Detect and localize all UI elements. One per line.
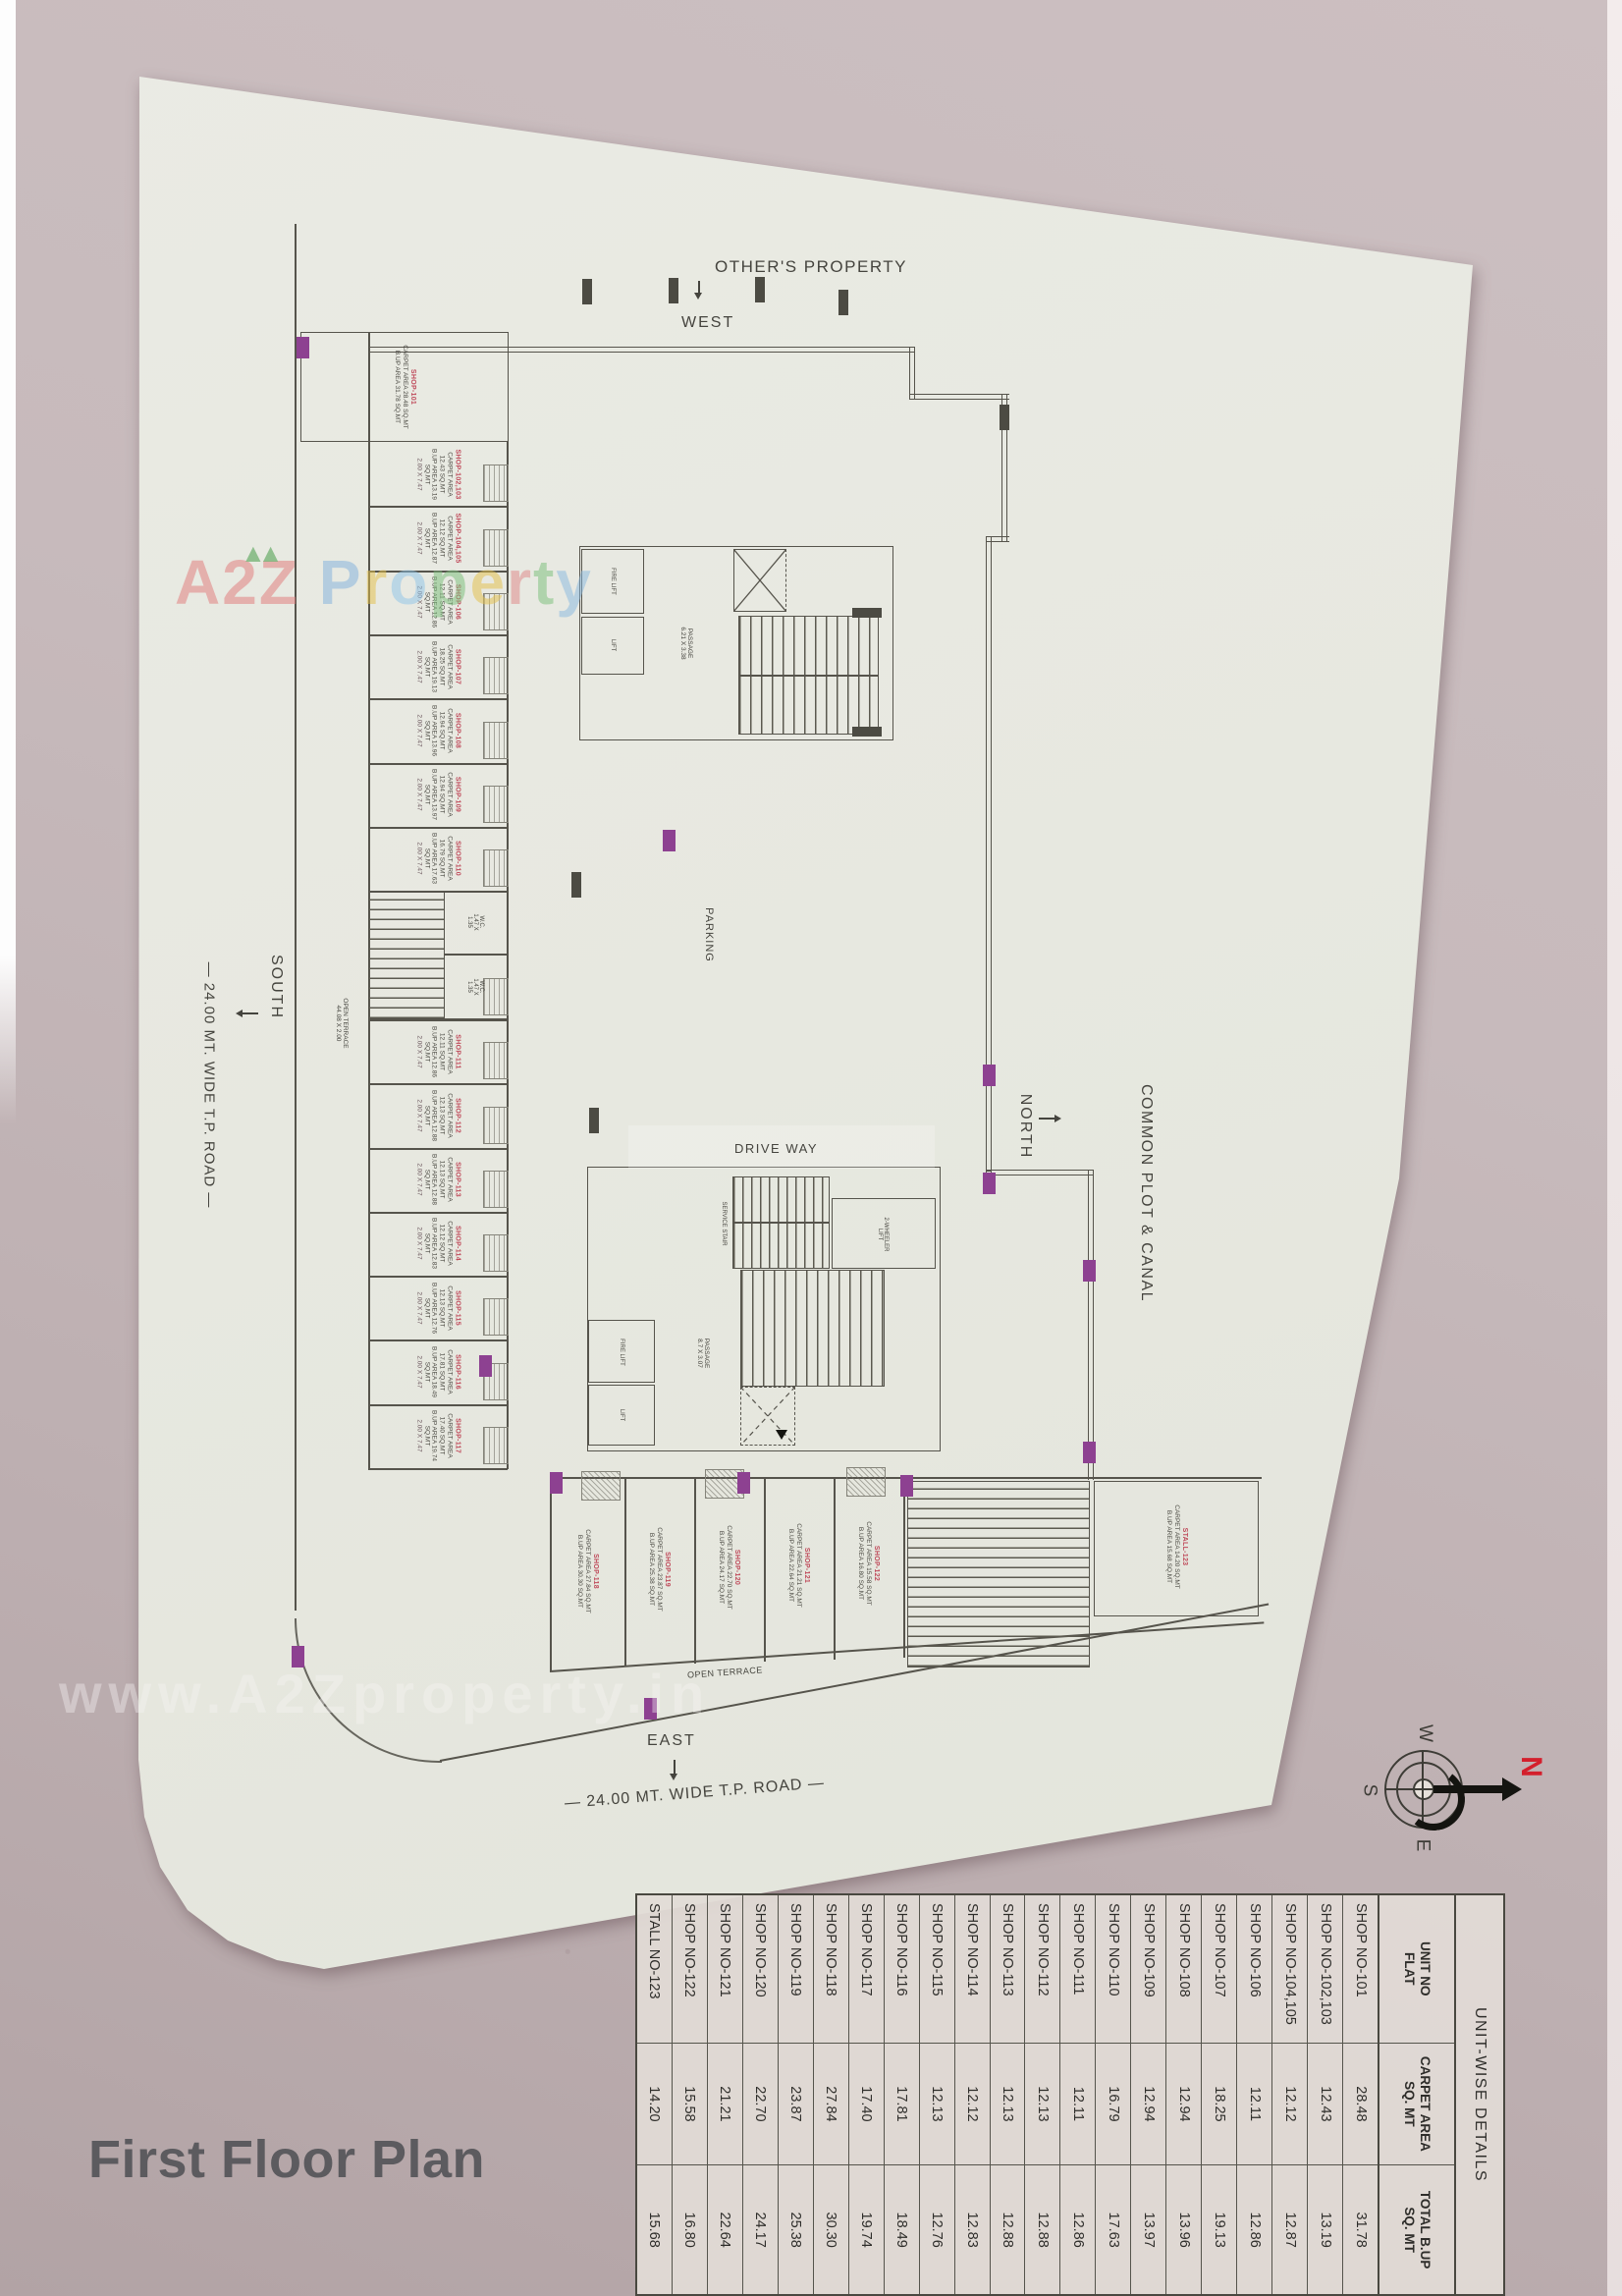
passage-lower-label: PASSAGE 8.7 X 3.07 (696, 1339, 710, 1369)
shop-unit: SHOP-117CARPET AREA 17.40 SQ.MTB.UP AREA… (415, 1407, 461, 1464)
compass-n: N (1514, 1756, 1547, 1777)
open-terrace-left-label: OPEN TERRACE 44.08 X 2.00 (335, 998, 349, 1048)
passage-upper-label: PASSAGE 6.21 X 3.38 (679, 627, 693, 659)
table-cell: SHOP NO-108 (1166, 1895, 1201, 2044)
shop-divider (368, 1212, 508, 1214)
table-cell: SHOP NO-113 (991, 1895, 1025, 2044)
a2z-watermark-brand: A2Z (175, 547, 299, 618)
boundary-wall (986, 1170, 1094, 1175)
shop-door (483, 1298, 509, 1336)
shop-unit: SHOP-110CARPET AREA 16.79 SQ.MTB.UP AREA… (415, 830, 461, 887)
a2z-watermark-letter: o (389, 547, 429, 618)
table-cell: 12.13 (991, 2044, 1025, 2166)
table-cell: 17.40 (849, 2044, 884, 2166)
a2z-watermark-letter: e (469, 547, 507, 618)
upper-stair-rail (738, 675, 879, 677)
service-stair-rail (732, 1222, 830, 1224)
north-label: NORTH (1016, 1094, 1034, 1160)
mountain-icon: ▲▲ (241, 538, 275, 569)
table-cell: STALL NO-123 (637, 1895, 672, 2044)
column (669, 278, 678, 303)
table-cell: 14.20 (637, 2044, 672, 2166)
boundary-wall (909, 394, 1009, 400)
table-header-cell: UNIT NO FLAT (1379, 1895, 1454, 2044)
table-cell: 31.78 (1343, 2165, 1378, 2294)
a2z-watermark-letter: r (507, 547, 533, 618)
table-header-cell: TOTAL B.UP SQ. MT (1379, 2165, 1454, 2294)
shop-unit: SHOP-115CARPET AREA 12.13 SQ.MTB.UP AREA… (415, 1280, 461, 1337)
table-cell: 19.74 (849, 2165, 884, 2294)
wc-1-label: W.C. 1.47 X 1.35 (466, 913, 484, 930)
table-cell: 16.79 (1096, 2044, 1130, 2166)
table-cell: SHOP NO-107 (1202, 1895, 1236, 2044)
table-row: SHOP NO-11827.8430.30 (813, 1895, 848, 2294)
table-row: SHOP NO-12121.2122.64 (707, 1895, 742, 2294)
unit-wise-details-table: UNIT-WISE DETAILS UNIT NO FLATCARPET ARE… (635, 1893, 1505, 2296)
shop-divider (368, 1404, 508, 1406)
table-header-row: UNIT NO FLATCARPET AREA SQ. MTTOTAL B.UP… (1378, 1895, 1454, 2294)
table-cell: 23.87 (779, 2044, 813, 2166)
drive-way-label: DRIVE WAY (734, 1141, 818, 1156)
table-row: SHOP NO-10128.4831.78 (1342, 1895, 1378, 2294)
column-marker (1083, 1442, 1096, 1463)
shop-divider (368, 763, 508, 765)
table-cell: 12.94 (1166, 2044, 1201, 2166)
shop-unit: SHOP-102,103CARPET AREA 12.43 SQ.MTB.UP … (415, 446, 461, 503)
shop-door (483, 1042, 509, 1079)
table-row: SHOP NO-11312.1312.88 (990, 1895, 1025, 2294)
table-header-cell: CARPET AREA SQ. MT (1379, 2044, 1454, 2166)
fire-lift-upper-label: FIRE LIFT (610, 568, 616, 595)
table-cell: SHOP NO-114 (955, 1895, 990, 2044)
shop-divider (368, 1083, 508, 1085)
shop-divider (368, 1019, 508, 1021)
shaft-x (733, 549, 786, 612)
table-cell: 12.94 (1131, 2044, 1165, 2166)
table-row: SHOP NO-11412.1212.83 (954, 1895, 990, 2294)
column (1000, 405, 1009, 430)
table-row: SHOP NO-11112.1112.86 (1059, 1895, 1095, 2294)
service-stair-label: SERVICE STAIR (721, 1201, 727, 1245)
table-cell: SHOP NO-104,105 (1272, 1895, 1307, 2044)
table-cell: 18.25 (1202, 2044, 1236, 2166)
shop-unit: STALL-123CARPET AREA 14.20 SQ.MTB.UP ARE… (1164, 1498, 1188, 1596)
table-cell: 13.19 (1308, 2165, 1342, 2294)
lower-stair (740, 1270, 885, 1387)
west-label: WEST (681, 314, 734, 332)
table-cell: SHOP NO-118 (814, 1895, 848, 2044)
column (571, 872, 581, 898)
table-cell: SHOP NO-122 (673, 1895, 707, 2044)
table-cell: 12.13 (920, 2044, 954, 2166)
shop-unit: SHOP-101CARPET AREA 28.48 SQ.MTB.UP AREA… (393, 333, 416, 441)
table-cell: 22.64 (708, 2165, 742, 2294)
shop-divider (368, 827, 508, 829)
table-cell: SHOP NO-119 (779, 1895, 813, 2044)
shop-door (483, 722, 509, 759)
shop-door (483, 1234, 509, 1272)
table-cell: 12.43 (1308, 2044, 1342, 2166)
compass-needle-head (1502, 1777, 1522, 1801)
wc-2-label: W.C. 1.47 X 1.35 (466, 978, 484, 995)
column-marker (983, 1065, 996, 1086)
table-cell: 17.63 (1096, 2165, 1130, 2294)
column-marker (900, 1475, 913, 1497)
table-cell: 13.97 (1131, 2165, 1165, 2294)
column (838, 290, 848, 315)
shop-divider (368, 698, 508, 700)
shop-door (483, 978, 509, 1015)
table-cell: 25.38 (779, 2165, 813, 2294)
shop-door (483, 1107, 509, 1144)
table-cell: 12.83 (955, 2165, 990, 2294)
table-cell: 28.48 (1343, 2044, 1378, 2166)
table-row: SHOP NO-12215.5816.80 (672, 1895, 707, 2294)
boundary-wall (1088, 1170, 1094, 1480)
column-marker (550, 1472, 563, 1494)
a2z-watermark-letter: r (362, 547, 389, 618)
table-cell: SHOP NO-117 (849, 1895, 884, 2044)
table-cell: 21.21 (708, 2044, 742, 2166)
a2z-watermark-property: Property (319, 547, 593, 618)
shop-door (483, 849, 509, 887)
terrace-stair (368, 891, 445, 1019)
east-divider (624, 1479, 626, 1666)
table-row: STALL NO-12314.2015.68 (637, 1895, 672, 2294)
column-marker (1083, 1260, 1096, 1282)
east-divider (834, 1479, 836, 1660)
column-marker (297, 337, 309, 358)
fire-lift-lower-label: FIRE LIFT (619, 1339, 624, 1366)
table-row: SHOP NO-11512.1312.76 (919, 1895, 954, 2294)
compass-needle (1433, 1785, 1504, 1793)
table-cell: 16.80 (673, 2165, 707, 2294)
shop-divider (368, 1148, 508, 1150)
shaft-arrow-icon (776, 1430, 787, 1440)
table-cell: SHOP NO-111 (1060, 1895, 1095, 2044)
shop-door (483, 786, 509, 823)
table-cell: 19.13 (1202, 2165, 1236, 2294)
compass-e: E (1411, 1839, 1433, 1852)
compass-s: S (1358, 1784, 1379, 1797)
shop-unit: SHOP-120CARPET AREA 22.70 SQ.MTB.UP AREA… (717, 1520, 740, 1614)
shop-unit: SHOP-122CARPET AREA 15.58 SQ.MTB.UP AREA… (856, 1516, 880, 1611)
table-row: SHOP NO-11923.8725.38 (778, 1895, 813, 2294)
table-cell: SHOP NO-112 (1025, 1895, 1059, 2044)
west-arrow-stem (698, 281, 700, 293)
table-cell: 22.70 (743, 2044, 778, 2166)
a2z-watermark-letter: P (319, 547, 363, 618)
table-cell: 12.13 (1025, 2044, 1059, 2166)
shop-door (483, 465, 509, 502)
table-row: SHOP NO-11212.1312.88 (1024, 1895, 1059, 2294)
column (582, 279, 592, 304)
table-cell: 12.86 (1237, 2165, 1271, 2294)
shop-divider (368, 634, 508, 636)
url-watermark: www.A2Zproperty.in (59, 1662, 711, 1725)
east-divider (694, 1479, 696, 1664)
table-cell: 13.96 (1166, 2165, 1201, 2294)
shop-door (483, 1427, 509, 1464)
west-arrow-icon (694, 293, 702, 300)
table-row: SHOP NO-104,10512.1212.87 (1271, 1895, 1307, 2294)
compass-w: W (1414, 1724, 1435, 1742)
table-row: SHOP NO-11717.4019.74 (848, 1895, 884, 2294)
shop-door (483, 1171, 509, 1208)
shop-divider (368, 1468, 508, 1470)
page-title: First Floor Plan (88, 2129, 485, 2190)
parking-label: PARKING (703, 907, 715, 962)
east-left-wall (550, 1477, 552, 1671)
table-caption: UNIT-WISE DETAILS (1454, 1895, 1503, 2294)
table-cell: SHOP NO-120 (743, 1895, 778, 2044)
shop-unit: SHOP-109CARPET AREA 12.94 SQ.MTB.UP AREA… (415, 766, 461, 823)
table-cell: 12.12 (1272, 2044, 1307, 2166)
south-label: SOUTH (267, 955, 285, 1019)
a2z-watermark: A2Z Property (175, 546, 593, 619)
east-arrow-stem (674, 1760, 676, 1774)
shop-divider (368, 1339, 508, 1341)
shop-door (483, 657, 509, 694)
two-wheeler-lift-label: 2-WHEELER LIFT (877, 1217, 889, 1251)
east-divider (764, 1479, 766, 1662)
a2z-watermark-letter: y (556, 547, 593, 618)
shop-unit: SHOP-121CARPET AREA 21.21 SQ.MTB.UP AREA… (786, 1518, 810, 1613)
table-row: SHOP NO-10912.9413.97 (1130, 1895, 1165, 2294)
column (589, 1108, 599, 1133)
column-marker (983, 1173, 996, 1194)
table-cell: 15.68 (637, 2165, 672, 2294)
column-marker (737, 1472, 750, 1494)
table-cell: 12.88 (1025, 2165, 1059, 2294)
table-cell: 12.12 (955, 2044, 990, 2166)
shop-unit: SHOP-116CARPET AREA 17.81 SQ.MTB.UP AREA… (415, 1343, 461, 1400)
table-cell: 15.58 (673, 2044, 707, 2166)
table-cell: SHOP NO-115 (920, 1895, 954, 2044)
floor-plan-photo: SHOP-101CARPET AREA 28.48 SQ.MTB.UP AREA… (0, 0, 1622, 2296)
table-cell: 12.11 (1060, 2044, 1095, 2166)
plot-boundary-line (295, 224, 297, 1611)
compass: W S E N (1365, 1719, 1591, 1866)
table-cell: 12.76 (920, 2165, 954, 2294)
boundary-wall (909, 347, 915, 400)
stair-corner (852, 727, 882, 737)
shop-unit: SHOP-108CARPET AREA 12.94 SQ.MTB.UP AREA… (415, 702, 461, 759)
south-arrow-stem (243, 1012, 258, 1014)
a2z-watermark-letter: p (429, 547, 469, 618)
east-door-step (846, 1467, 886, 1497)
common-plot-label: COMMON PLOT & CANAL (1137, 1084, 1155, 1302)
north-arrow-icon (1054, 1115, 1061, 1122)
table-cell: 18.49 (885, 2165, 919, 2294)
lift-upper-label: LIFT (610, 639, 616, 651)
table-cell: SHOP NO-109 (1131, 1895, 1165, 2044)
table-row: SHOP NO-12022.7024.17 (742, 1895, 778, 2294)
table-row: SHOP NO-11617.8118.49 (884, 1895, 919, 2294)
shop-divider (368, 506, 508, 508)
east-divider (903, 1479, 905, 1658)
table-cell: 12.88 (991, 2165, 1025, 2294)
stair-corner (852, 608, 882, 618)
north-arrow-stem (1039, 1118, 1054, 1120)
shop-divider (368, 1276, 508, 1278)
road-left-label: — 24.00 MT. WIDE T.P. ROAD — (201, 962, 218, 1209)
others-property-label: OTHER'S PROPERTY (715, 257, 907, 277)
east-door-step (581, 1471, 621, 1501)
table-cell: SHOP NO-106 (1237, 1895, 1271, 2044)
column-marker (479, 1355, 492, 1377)
lift-lower-label: LIFT (619, 1409, 624, 1421)
east-stair (907, 1481, 1090, 1667)
table-row: SHOP NO-11016.7917.63 (1095, 1895, 1130, 2294)
table-cell: 24.17 (743, 2165, 778, 2294)
shop-unit: SHOP-113CARPET AREA 12.13 SQ.MTB.UP AREA… (415, 1151, 461, 1208)
table-cell: 12.86 (1060, 2165, 1095, 2294)
shop-unit: SHOP-114CARPET AREA 12.12 SQ.MTB.UP AREA… (415, 1215, 461, 1272)
table-row: SHOP NO-102,10312.4313.19 (1307, 1895, 1342, 2294)
shop-unit: SHOP-118CARPET AREA 27.84 SQ.MTB.UP AREA… (575, 1524, 599, 1618)
table-row: SHOP NO-10812.9413.96 (1165, 1895, 1201, 2294)
table-body: SHOP NO-10128.4831.78SHOP NO-102,10312.4… (637, 1895, 1378, 2294)
south-arrow-icon (236, 1010, 243, 1017)
column-marker (663, 830, 676, 851)
table-cell: 27.84 (814, 2044, 848, 2166)
table-cell: SHOP NO-102,103 (1308, 1895, 1342, 2044)
table-cell: SHOP NO-121 (708, 1895, 742, 2044)
column (755, 277, 765, 302)
shop-unit: SHOP-111CARPET AREA 12.11 SQ.MTB.UP AREA… (415, 1023, 461, 1080)
a2z-watermark-letter: t (533, 547, 556, 618)
table-cell: SHOP NO-116 (885, 1895, 919, 2044)
table-row: SHOP NO-10612.1112.86 (1236, 1895, 1271, 2294)
table-cell: 17.81 (885, 2044, 919, 2166)
shop-unit: SHOP-119CARPET AREA 23.87 SQ.MTB.UP AREA… (647, 1522, 671, 1616)
east-arrow-icon (670, 1774, 677, 1780)
table-cell: SHOP NO-110 (1096, 1895, 1130, 2044)
shop-unit: SHOP-107CARPET AREA 18.25 SQ.MTB.UP AREA… (415, 638, 461, 695)
shop-unit: SHOP-112CARPET AREA 12.13 SQ.MTB.UP AREA… (415, 1087, 461, 1144)
table-cell: 12.87 (1272, 2165, 1307, 2294)
east-label: EAST (647, 1732, 696, 1750)
table-cell: SHOP NO-101 (1343, 1895, 1378, 2044)
table-cell: 30.30 (814, 2165, 848, 2294)
table-row: SHOP NO-10718.2519.13 (1201, 1895, 1236, 2294)
table-cell: 12.11 (1237, 2044, 1271, 2166)
